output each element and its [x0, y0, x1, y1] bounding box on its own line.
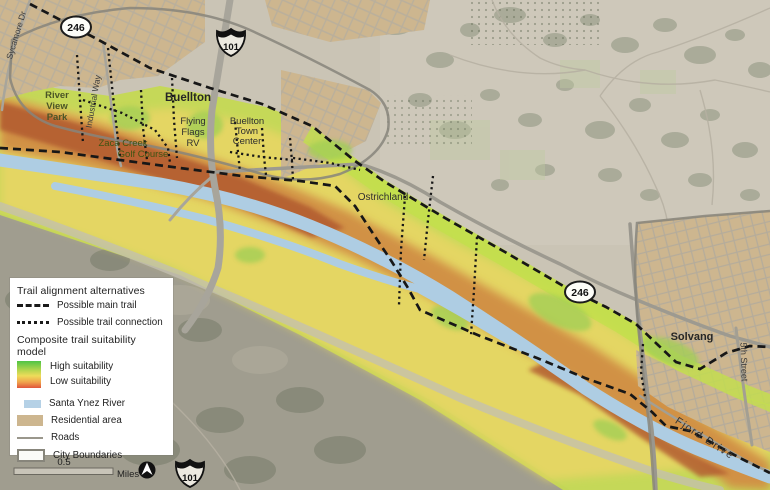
- legend-roads-label: Roads: [51, 432, 79, 443]
- route-246-shield-east: 246: [565, 282, 595, 303]
- orchard-texture-1: [470, 0, 600, 45]
- legend-trail-header: Trail alignment alternatives: [17, 285, 166, 297]
- suitability-gradient-swatch: [17, 361, 41, 388]
- svg-text:Zaca Creek: Zaca Creek: [98, 138, 147, 149]
- svg-text:RV: RV: [186, 138, 200, 149]
- north-arrow-icon: [139, 462, 156, 479]
- legend-city-label: City Boundaries: [53, 450, 122, 461]
- legend-high-suitability-label: High suitability: [50, 361, 113, 372]
- scale-bar: [14, 468, 113, 475]
- legend-roads-row: Roads: [17, 432, 166, 443]
- dotted-line-swatch: [17, 321, 49, 324]
- legend-main-trail-label: Possible main trail: [57, 300, 137, 311]
- city-boundary-swatch: [17, 449, 45, 462]
- svg-text:Flying: Flying: [180, 116, 205, 127]
- legend-suitability-row: High suitability Low suitability: [17, 361, 166, 388]
- scale-unit: Miles: [117, 469, 139, 480]
- legend-river-row: Santa Ynez River: [17, 398, 166, 409]
- river-swatch: [24, 400, 41, 408]
- svg-text:Flags: Flags: [181, 127, 204, 138]
- route-246-shield-west-label: 246: [67, 22, 85, 34]
- legend-river-label: Santa Ynez River: [49, 398, 125, 409]
- interstate-101-shield-south-label: 101: [182, 473, 199, 484]
- buellton-label: Buellton: [165, 92, 211, 104]
- roads-swatch: [17, 437, 43, 439]
- map-legend: Trail alignment alternatives Possible ma…: [10, 278, 173, 455]
- legend-residential-row: Residential area: [17, 415, 166, 426]
- legend-trail-connection-row: Possible trail connection: [17, 317, 166, 328]
- solvang-label: Solvang: [671, 331, 714, 343]
- svg-text:View: View: [46, 101, 68, 112]
- route-246-shield-west: 246: [61, 17, 91, 38]
- map-stage: 246 246 101 101 0.5 Miles Sycamore Dr In…: [0, 0, 770, 490]
- suitability-gradient-labels: High suitability Low suitability: [50, 361, 113, 388]
- route-246-shield-east-label: 246: [571, 287, 589, 299]
- dashed-line-swatch: [17, 304, 49, 307]
- legend-low-suitability-label: Low suitability: [50, 376, 113, 387]
- svg-text:River: River: [45, 90, 69, 101]
- residential-swatch: [17, 415, 43, 426]
- svg-text:Park: Park: [47, 112, 68, 123]
- legend-city-row: City Boundaries: [17, 449, 166, 462]
- legend-trail-connection-label: Possible trail connection: [57, 317, 163, 328]
- svg-text:Golf Course: Golf Course: [118, 149, 169, 160]
- orchard-texture-2: [382, 95, 472, 145]
- river-view-park-label: River View Park: [45, 90, 69, 123]
- ostrichland-label: Ostrichland: [358, 192, 409, 203]
- legend-main-trail-row: Possible main trail: [17, 300, 166, 311]
- legend-suitability-header: Composite trail suitability model: [17, 334, 166, 358]
- interstate-101-shield-north-label: 101: [223, 42, 240, 53]
- svg-text:Center: Center: [233, 136, 262, 147]
- fifth-street-label: 5th Street: [738, 342, 749, 382]
- legend-residential-label: Residential area: [51, 415, 122, 426]
